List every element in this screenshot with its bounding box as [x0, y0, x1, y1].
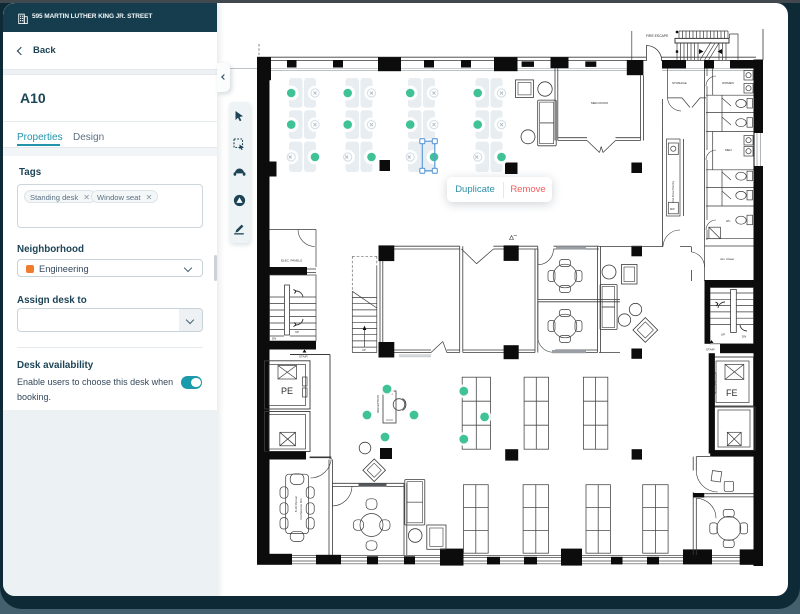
svg-text:MED ROOM: MED ROOM	[591, 101, 608, 105]
svg-text:UP: UP	[295, 330, 299, 334]
svg-text:UP: UP	[721, 333, 725, 337]
svg-text:FE: FE	[726, 388, 738, 398]
svg-text:STAIR: STAIR	[299, 355, 308, 359]
svg-text:FIRE ESCAPE: FIRE ESCAPE	[646, 34, 669, 38]
svg-text:WOMEN: WOMEN	[722, 81, 734, 85]
svg-text:MEN: MEN	[725, 148, 732, 152]
svg-text:8-10 Person: 8-10 Person	[294, 495, 298, 512]
svg-text:Jan. Closet: Jan. Closet	[720, 257, 734, 261]
svg-text:ELEC. PANELS: ELEC. PANELS	[281, 259, 302, 263]
svg-text:MW: MW	[670, 207, 675, 211]
svg-text:DN: DN	[742, 335, 746, 339]
svg-text:DN: DN	[272, 337, 276, 341]
svg-text:RECEPTION: RECEPTION	[376, 395, 380, 413]
svg-text:STORAGE: STORAGE	[672, 81, 687, 85]
svg-text:STAIR: STAIR	[706, 348, 715, 352]
svg-text:2nd Floor Pantry: 2nd Floor Pantry	[671, 180, 675, 203]
svg-text:PE: PE	[281, 386, 293, 396]
svg-text:WC: WC	[726, 219, 730, 223]
svg-text:Conference Rm: Conference Rm	[299, 498, 303, 520]
svg-text:UP: UP	[362, 348, 366, 352]
